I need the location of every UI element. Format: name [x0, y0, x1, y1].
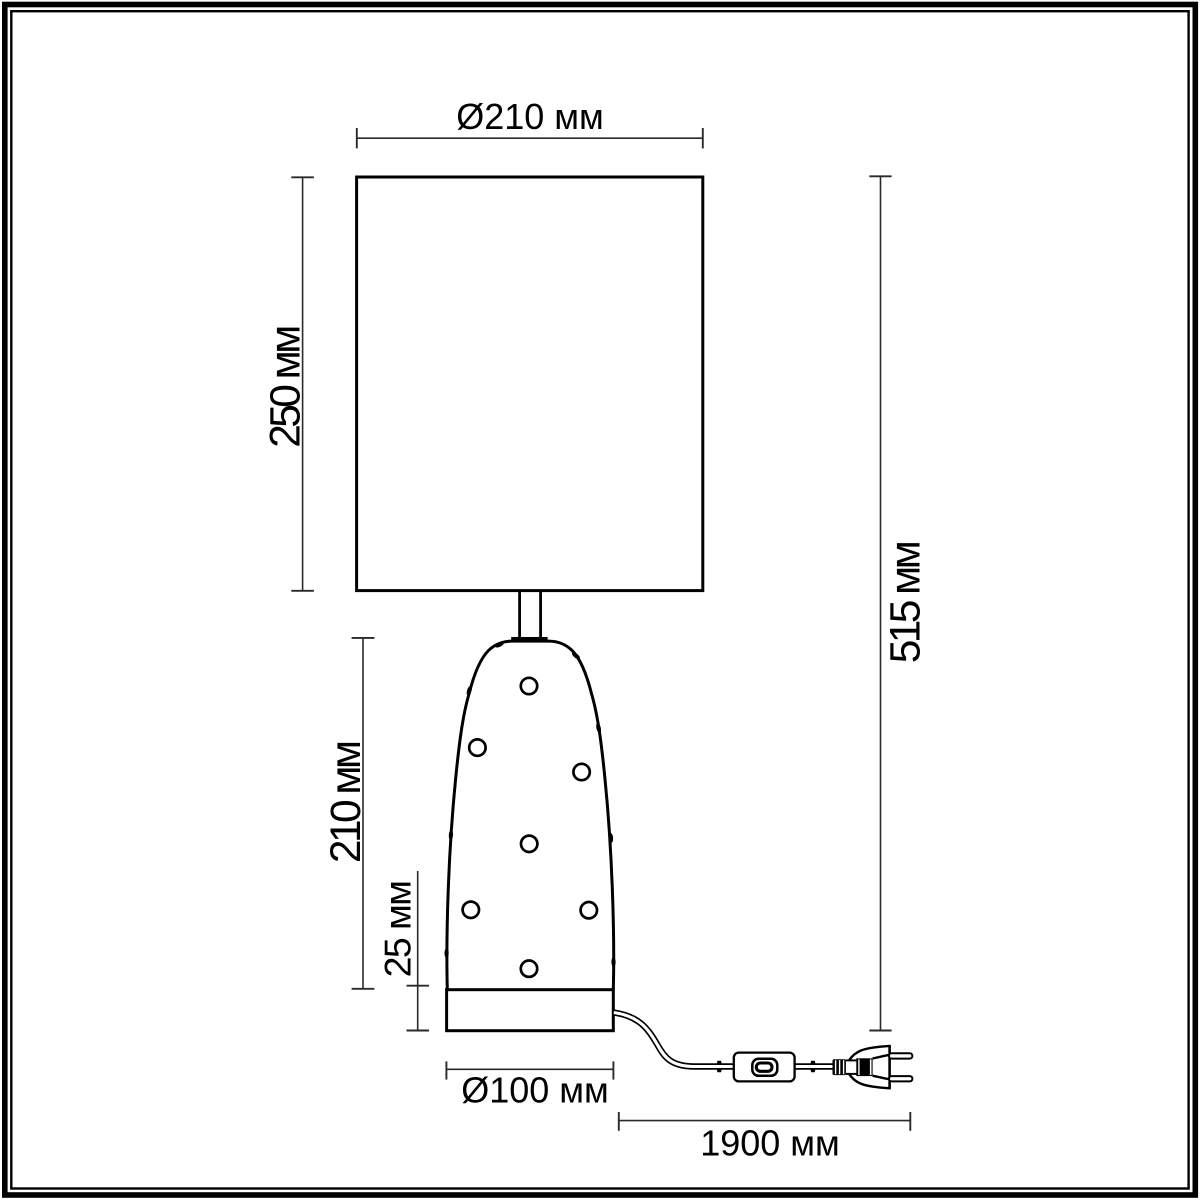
- svg-text:515 мм: 515 мм: [883, 542, 930, 663]
- svg-text:Ø210 мм: Ø210 мм: [456, 96, 604, 137]
- svg-text:Ø100 мм: Ø100 мм: [461, 1070, 609, 1111]
- svg-text:1900 мм: 1900 мм: [700, 1123, 840, 1164]
- svg-text:25 мм: 25 мм: [376, 882, 418, 978]
